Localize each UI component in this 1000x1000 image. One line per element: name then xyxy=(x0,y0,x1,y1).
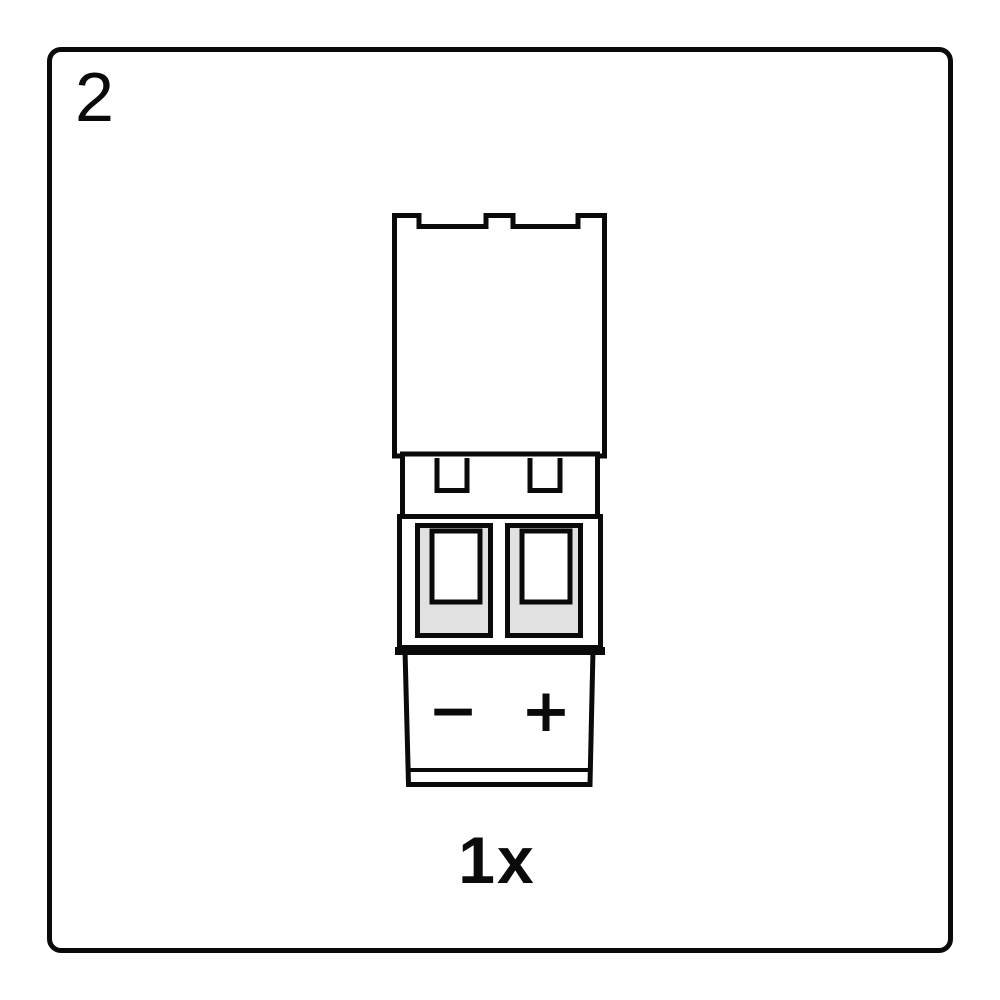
quantity-label: 1x xyxy=(372,827,622,893)
connector-collar xyxy=(403,454,598,518)
screw-window-left xyxy=(432,531,480,602)
instruction-step-panel: 2 − + 1x xyxy=(0,0,1000,1000)
screw-window-right xyxy=(522,531,570,602)
polarity-minus-label: − xyxy=(428,676,478,746)
connector-housing-top xyxy=(395,216,605,457)
polarity-plus-label: + xyxy=(521,676,571,746)
